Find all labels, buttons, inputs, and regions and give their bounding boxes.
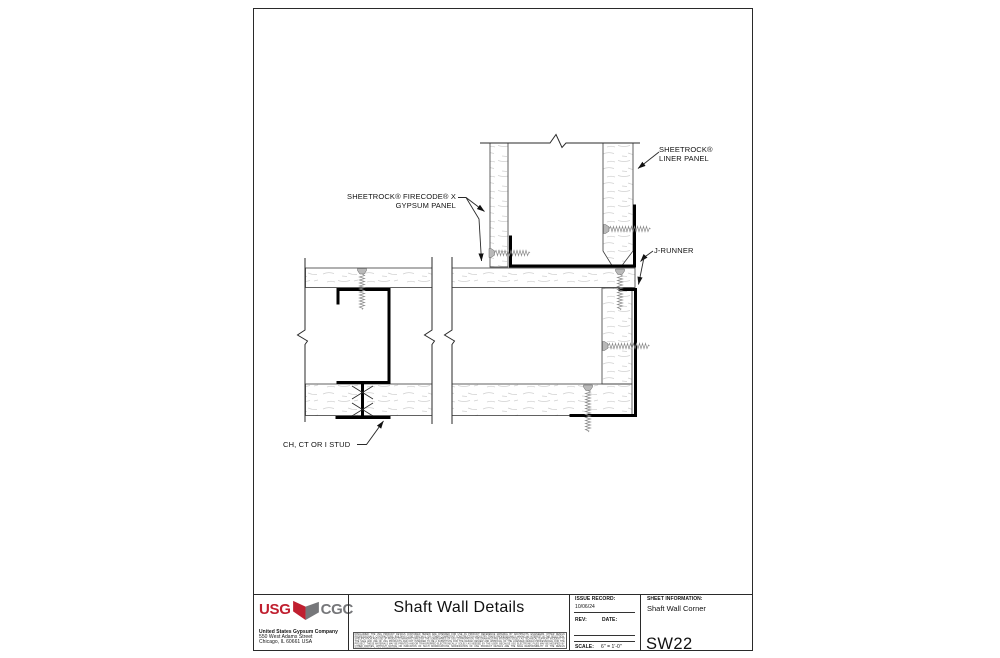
page: { "drawing": { "labels": { "liner_panel_… [0, 0, 1000, 658]
drawing-title: Shaft Wall Details [349, 599, 569, 617]
company-city: Chicago, IL 60661 USA [259, 640, 338, 645]
revision-rule-1 [574, 635, 635, 636]
scale-label: SCALE: [575, 645, 594, 650]
leader-j-runner-upper [641, 251, 654, 262]
leader-gypsum-panel-upper [458, 198, 485, 212]
shaft-wall-corner-detail-drawing [0, 0, 1000, 658]
label-liner-panel-line1: SHEETROCK® [659, 145, 713, 155]
upper-wall-liner-panel [603, 143, 633, 266]
date-label: DATE: [602, 618, 617, 623]
sheet-information-label: SHEET INFORMATION: [647, 597, 703, 602]
company-address: United States Gypsum Company 550 West Ad… [259, 630, 338, 645]
label-liner-panel: SHEETROCK® LINER PANEL [659, 145, 713, 165]
scale-value: 6" = 1'-0" [601, 645, 622, 650]
lower-wall-liner-panel [602, 288, 632, 384]
label-j-runner: J-RUNNER [654, 246, 694, 256]
label-stud: CH, CT OR I STUD [283, 440, 350, 450]
issue-date: 10/06/24 [575, 605, 595, 610]
title-block-title-cell: Shaft Wall Details DISCLAIMER: THE USG P… [348, 595, 569, 650]
horizontal-wall-top-panel-left [306, 268, 433, 288]
sheet-number: SW22 [646, 635, 693, 654]
issue-record-label: ISSUE RECORD: [575, 597, 615, 602]
issue-rule-1 [574, 612, 635, 613]
leader-stud [357, 421, 384, 445]
ch-stud-profile [338, 290, 389, 383]
title-block-issue-cell: ISSUE RECORD: 10/06/24 REV: DATE: SCALE:… [569, 595, 640, 650]
leader-liner-panel [638, 152, 659, 169]
disclaimer-text: DISCLAIMER: THE USG PRODUCT DETAILS CONT… [354, 633, 565, 650]
rev-label: REV: [575, 618, 587, 623]
logo-usg-text: USG [259, 601, 291, 618]
horizontal-wall-top-panel-right [452, 268, 635, 288]
usg-ribbon-icon [293, 599, 319, 620]
label-gypsum-panel: SHEETROCK® FIRECODE® X GYPSUM PANEL [290, 192, 456, 212]
revision-rule-2 [574, 641, 635, 642]
label-gypsum-panel-line1: SHEETROCK® FIRECODE® X [290, 192, 456, 202]
label-gypsum-panel-line2: GYPSUM PANEL [290, 201, 456, 211]
title-block: USG CGC United States Gypsum Company 550… [253, 594, 753, 651]
title-block-logo-cell: USG CGC United States Gypsum Company 550… [254, 595, 348, 650]
usg-cgc-logo: USG CGC [259, 598, 353, 620]
disclaimer-box: DISCLAIMER: THE USG PRODUCT DETAILS CONT… [353, 632, 567, 650]
upper-wall-gypsum-face-panel [490, 143, 508, 267]
label-liner-panel-line2: LINER PANEL [659, 154, 713, 164]
panel-shapes [306, 143, 636, 416]
sheet-title: Shaft Wall Corner [647, 604, 706, 613]
horizontal-wall-bottom-panel-right [452, 384, 632, 416]
title-block-sheet-info-cell: SHEET INFORMATION: Shaft Wall Corner SW2… [640, 595, 752, 650]
leader-j-runner-lower [639, 258, 645, 285]
